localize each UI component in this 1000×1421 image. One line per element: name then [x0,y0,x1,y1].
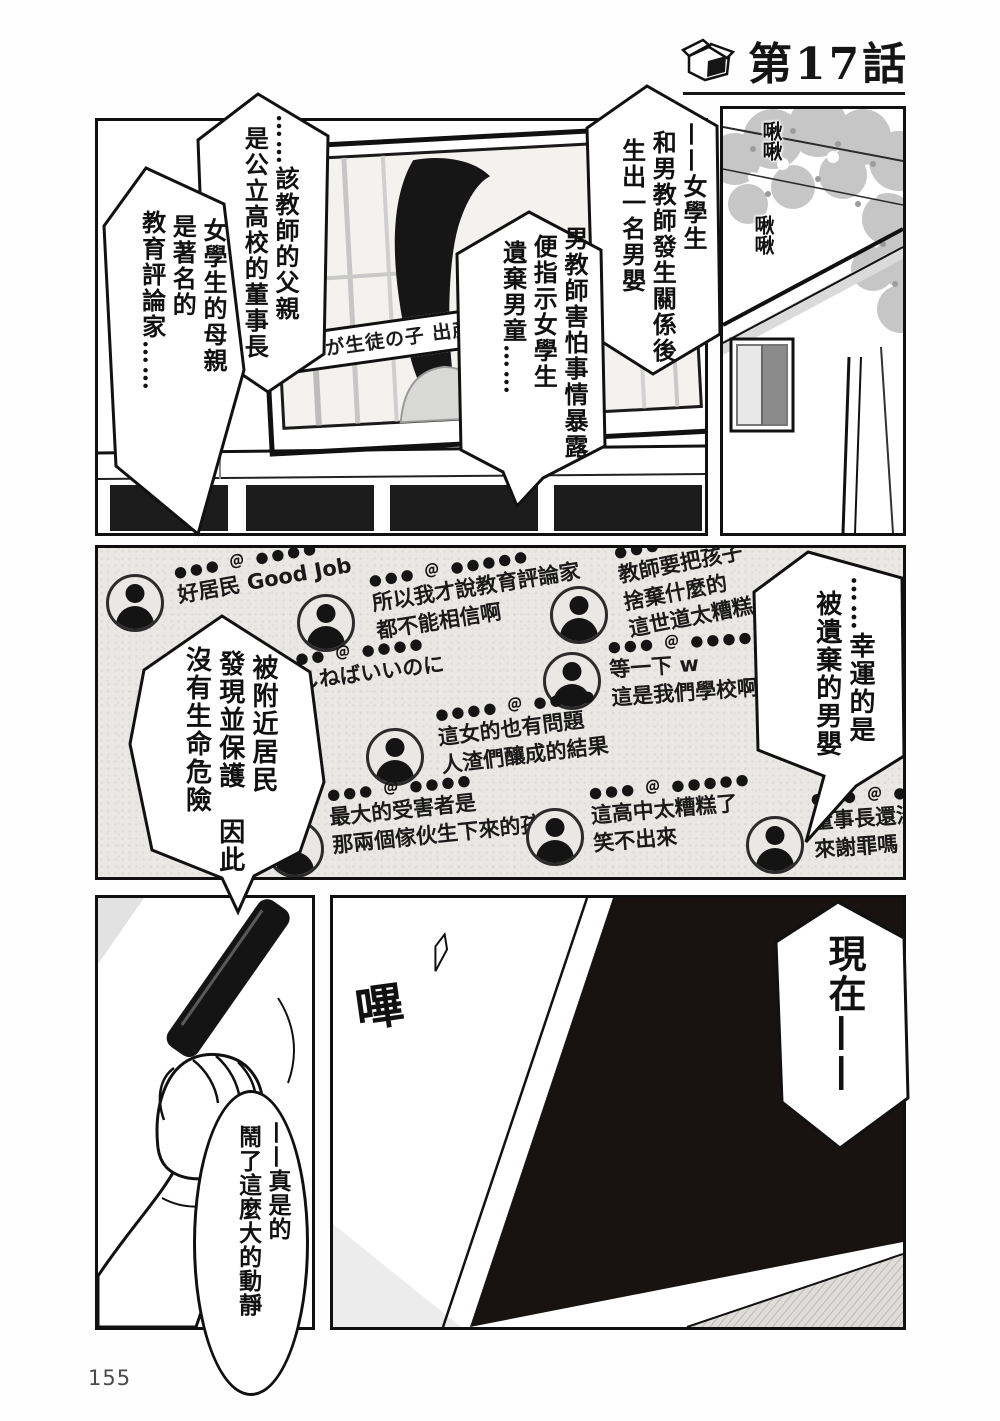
sfx-bird-chirp-1: 啾啾 [757,121,786,161]
bubble-line: ……幸運的是 [843,550,876,850]
bubble-line: 生出一名男嬰 [616,84,647,376]
speech-bubble-rescued-by-neighbors: 被附近居民 發現並保護 因此 沒有生命危險 [122,614,327,914]
chapter-title: 第17話 [748,28,909,92]
bubble-line: 被遺棄的男嬰 [809,550,842,850]
bubble-line: ——真是的 [263,1093,292,1393]
sfx-tv-off-beep: 嗶 [350,965,407,1041]
manga-page: 第17話 教師が生徒の子 [0,0,1000,1421]
bubble-line: 和男教師發生關係後 [647,84,678,376]
speech-bubble-lucky-baby: ……幸運的是 被遺棄的男嬰 [752,550,908,850]
page-number: 155 [88,1366,131,1390]
house-exterior-art [723,109,903,533]
open-box-icon [681,32,739,86]
bubble-line: 被附近居民 [246,614,279,914]
bubble-line: 發現並保護 因此 [212,614,245,914]
speech-bubble-mother-critic: 女學生的母親 是著名的 教育評論家…… [102,166,248,538]
speech-bubble-what-a-fuss: ——真是的 鬧了這麼大的動靜 [193,1090,309,1396]
feed-comment: ●●● ＠ ●●●●● 這高中太糟糕了 笑不出來 [526,782,751,858]
bubble-line: 是著名的 [167,166,198,538]
bubble-line: 便指示女學生 [528,210,559,510]
bubble-line: ——女學生 [677,84,708,376]
bubble-line: 鬧了這麼大的動靜 [233,1093,262,1393]
speech-bubble-now: 現在—— [772,900,912,1160]
bubble-line: 沒有生命危險 [179,614,212,914]
bubble-line: 遺棄男童…… [497,210,528,510]
bubble-line: 現在—— [819,900,868,1160]
bubble-line: 男教師害怕事情暴露 [558,210,589,510]
sfx-bird-chirp-2: 啾啾 [749,215,778,255]
bubble-line: ……該教師的父親 [269,92,300,394]
bubble-line: 教育評論家…… [136,166,167,538]
bubble-line: 女學生的母親 [197,166,228,538]
user-avatar-icon [526,808,584,866]
panel-house-exterior: 啾啾 啾啾 [720,106,906,536]
speech-bubble-teacher-abandon: 男教師害怕事情暴露 便指示女學生 遺棄男童…… [455,210,607,510]
